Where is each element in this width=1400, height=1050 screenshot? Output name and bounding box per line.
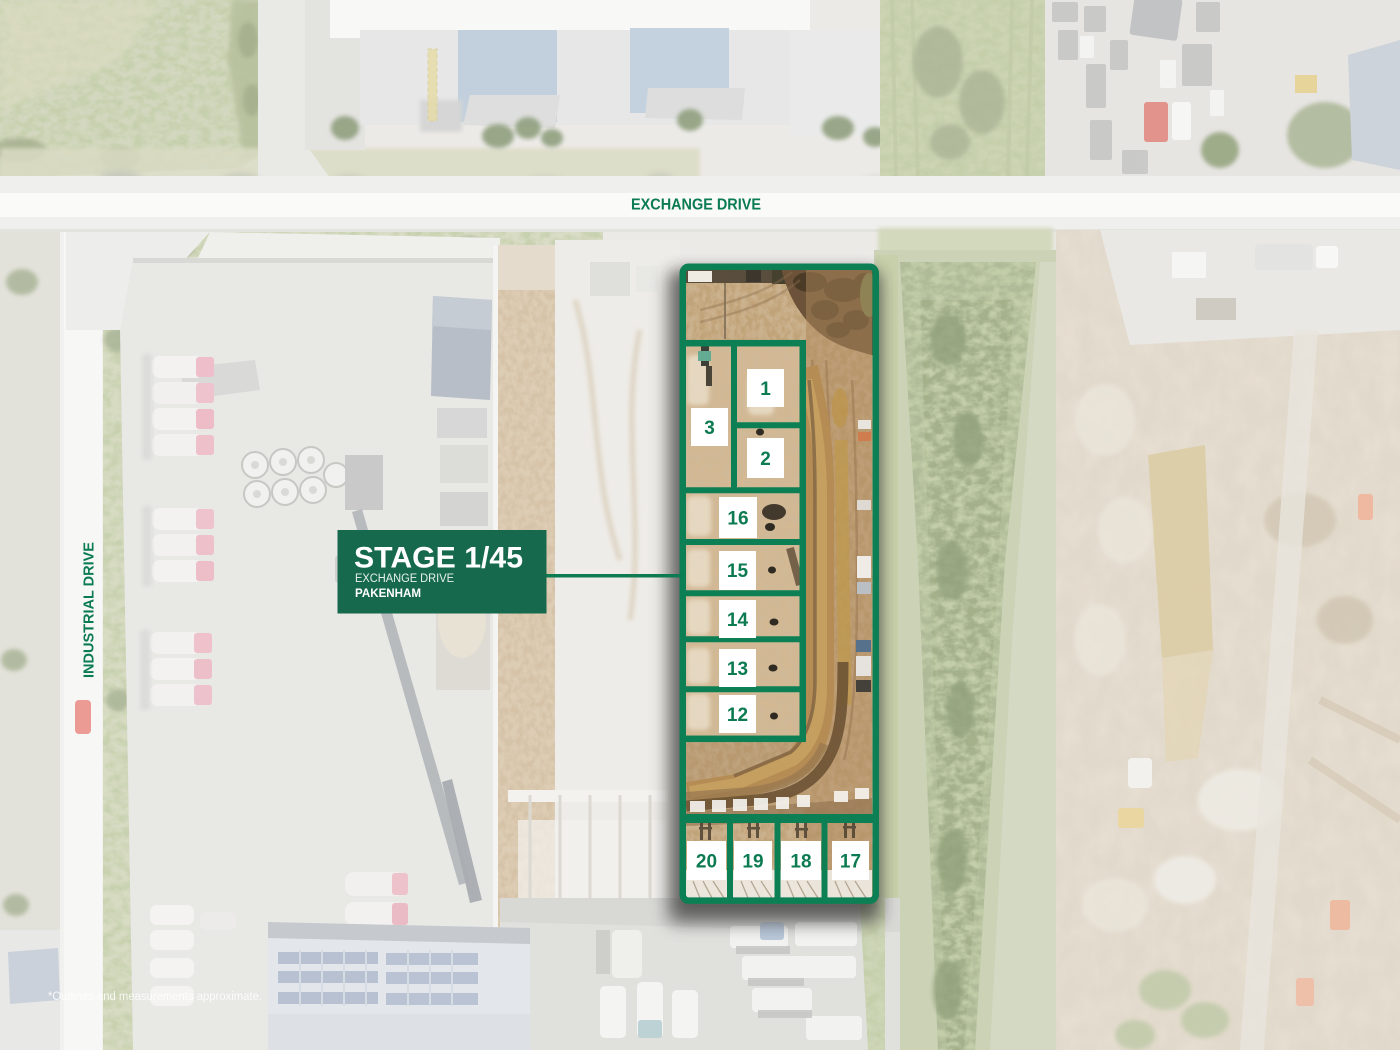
svg-text:EXCHANGE DRIVE: EXCHANGE DRIVE — [631, 197, 761, 214]
svg-text:19: 19 — [742, 852, 763, 873]
svg-text:PAKENHAM: PAKENHAM — [355, 586, 421, 600]
svg-text:2: 2 — [760, 449, 771, 470]
svg-text:18: 18 — [790, 852, 811, 873]
svg-text:14: 14 — [727, 610, 749, 631]
svg-text:*Outlines and measurements app: *Outlines and measurements approximate. — [48, 991, 262, 1003]
svg-text:16: 16 — [727, 509, 748, 530]
svg-text:17: 17 — [840, 852, 861, 873]
svg-text:3: 3 — [704, 418, 715, 439]
svg-text:20: 20 — [696, 852, 717, 873]
svg-text:15: 15 — [727, 561, 749, 582]
svg-text:STAGE 1/45: STAGE 1/45 — [354, 542, 523, 575]
svg-text:EXCHANGE DRIVE: EXCHANGE DRIVE — [355, 573, 454, 585]
svg-text:12: 12 — [727, 705, 748, 726]
svg-text:13: 13 — [727, 659, 748, 680]
svg-text:INDUSTRIAL DRIVE: INDUSTRIAL DRIVE — [81, 542, 98, 678]
svg-text:1: 1 — [760, 379, 771, 400]
